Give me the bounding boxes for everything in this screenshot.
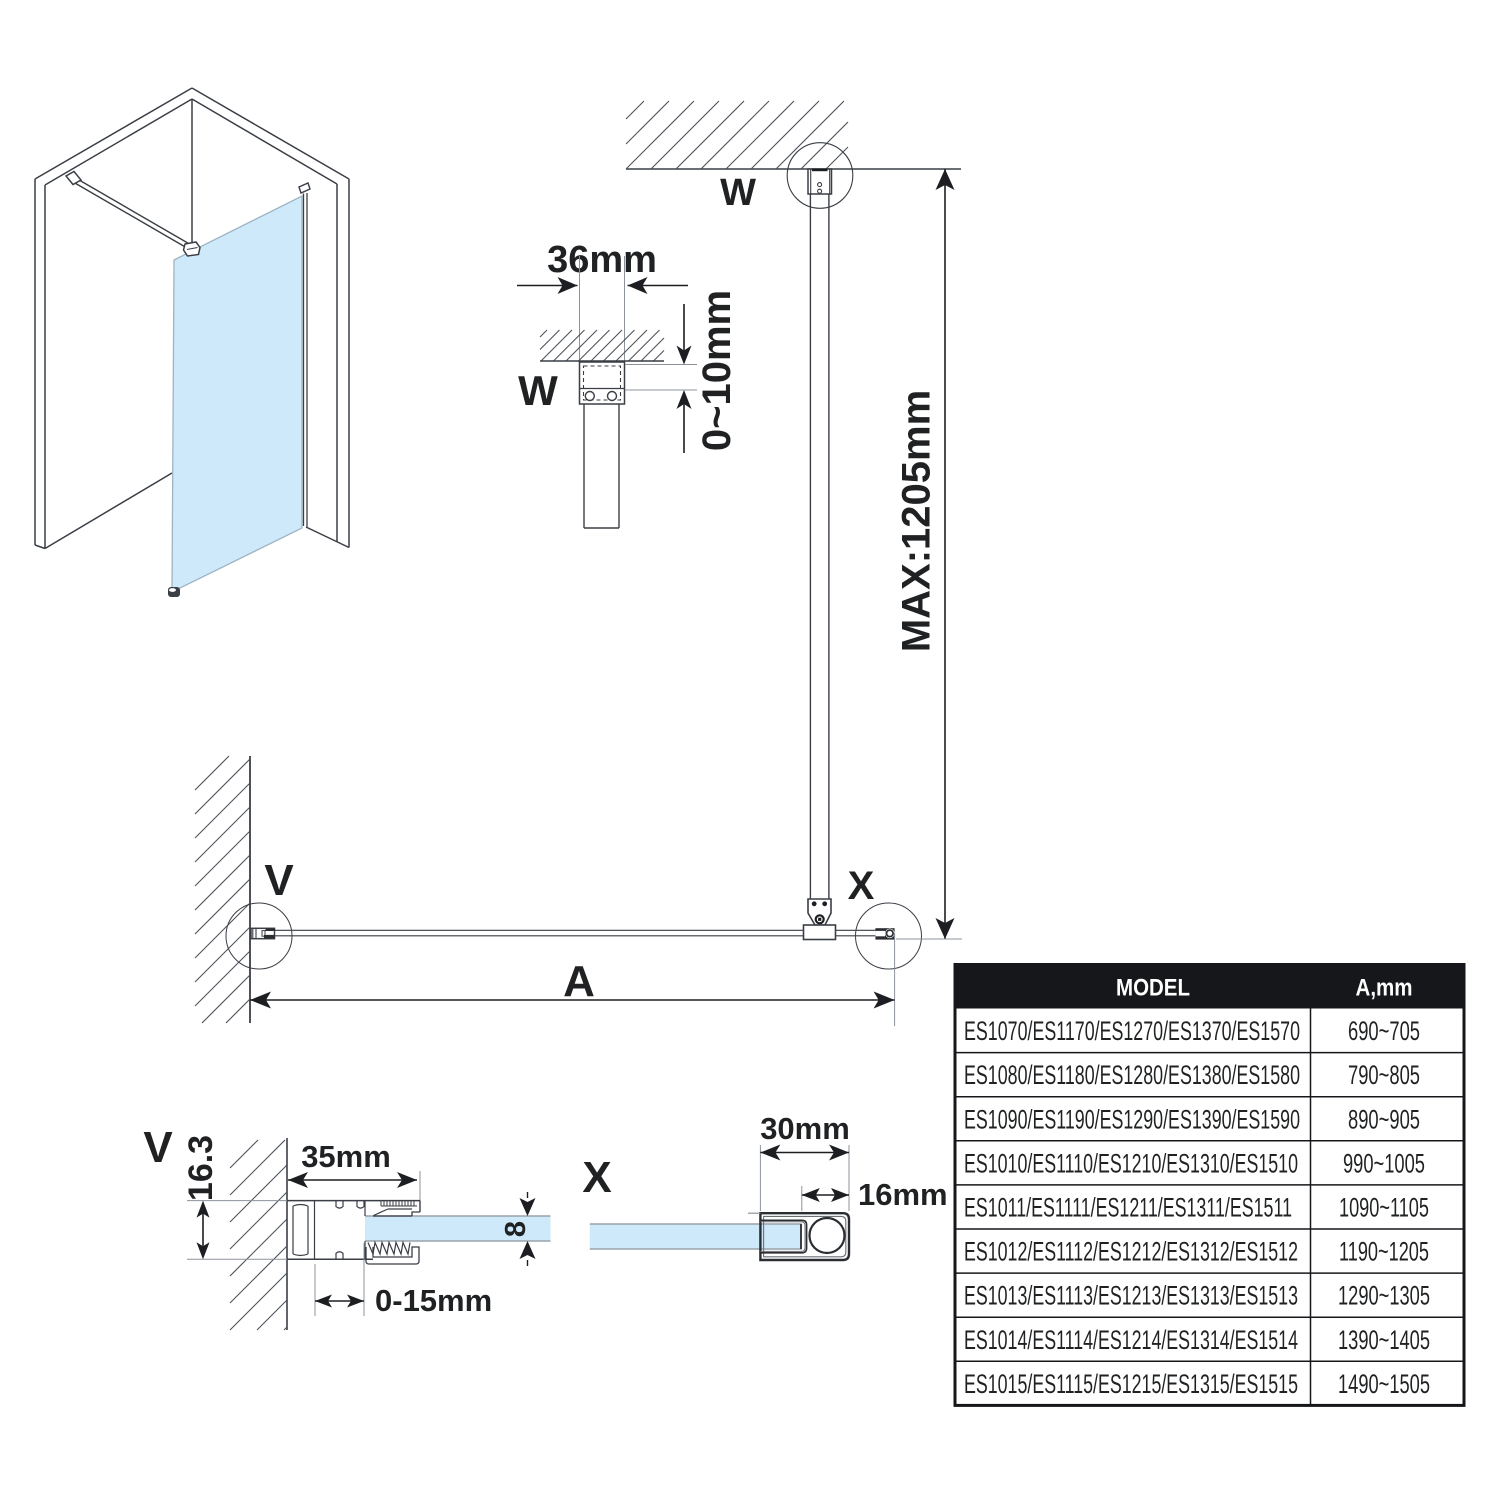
svg-text:1390~1405: 1390~1405 — [1338, 1325, 1430, 1355]
svg-text:X: X — [848, 864, 875, 908]
svg-text:1490~1505: 1490~1505 — [1338, 1369, 1430, 1399]
svg-text:990~1005: 990~1005 — [1343, 1148, 1425, 1178]
svg-text:690~705: 690~705 — [1348, 1016, 1420, 1046]
svg-text:ES1013/ES1113/ES1213/ES1313/ES: ES1013/ES1113/ES1213/ES1313/ES1513 — [964, 1281, 1298, 1311]
svg-text:0-15mm: 0-15mm — [375, 1283, 492, 1318]
svg-text:890~905: 890~905 — [1348, 1104, 1420, 1134]
svg-text:16.3: 16.3 — [182, 1135, 220, 1201]
svg-text:1190~1205: 1190~1205 — [1339, 1237, 1429, 1267]
svg-text:ES1014/ES1114/ES1214/ES1314/ES: ES1014/ES1114/ES1214/ES1314/ES1514 — [964, 1325, 1298, 1355]
svg-text:35mm: 35mm — [301, 1139, 391, 1174]
svg-text:V: V — [143, 1123, 173, 1172]
svg-text:X: X — [582, 1153, 611, 1202]
svg-text:MODEL: MODEL — [1116, 975, 1190, 1002]
svg-text:790~805: 790~805 — [1348, 1060, 1420, 1090]
svg-text:A,mm: A,mm — [1356, 975, 1413, 1002]
svg-text:MAX:1205mm: MAX:1205mm — [895, 390, 939, 652]
svg-text:8: 8 — [500, 1221, 532, 1237]
svg-text:36mm: 36mm — [547, 239, 657, 281]
svg-text:1090~1105: 1090~1105 — [1339, 1192, 1429, 1222]
svg-text:0~10mm: 0~10mm — [695, 290, 739, 451]
svg-text:ES1015/ES1115/ES1215/ES1315/ES: ES1015/ES1115/ES1215/ES1315/ES1515 — [964, 1369, 1298, 1399]
svg-text:ES1012/ES1112/ES1212/ES1312/ES: ES1012/ES1112/ES1212/ES1312/ES1512 — [964, 1237, 1298, 1267]
svg-text:1290~1305: 1290~1305 — [1338, 1281, 1430, 1311]
svg-text:W: W — [518, 367, 558, 414]
svg-text:ES1080/ES1180/ES1280/ES1380/ES: ES1080/ES1180/ES1280/ES1380/ES1580 — [964, 1060, 1300, 1090]
svg-text:W: W — [720, 172, 756, 214]
svg-text:A: A — [563, 957, 595, 1006]
svg-text:ES1090/ES1190/ES1290/ES1390/ES: ES1090/ES1190/ES1290/ES1390/ES1590 — [964, 1104, 1300, 1134]
svg-text:ES1010/ES1110/ES1210/ES1310/ES: ES1010/ES1110/ES1210/ES1310/ES1510 — [964, 1148, 1298, 1178]
svg-text:30mm: 30mm — [760, 1111, 850, 1146]
svg-text:16mm: 16mm — [858, 1177, 948, 1212]
svg-text:ES1011/ES1111/ES1211/ES1311/ES: ES1011/ES1111/ES1211/ES1311/ES1511 — [964, 1192, 1292, 1222]
svg-text:ES1070/ES1170/ES1270/ES1370/ES: ES1070/ES1170/ES1270/ES1370/ES1570 — [964, 1016, 1300, 1046]
svg-text:V: V — [264, 856, 294, 905]
